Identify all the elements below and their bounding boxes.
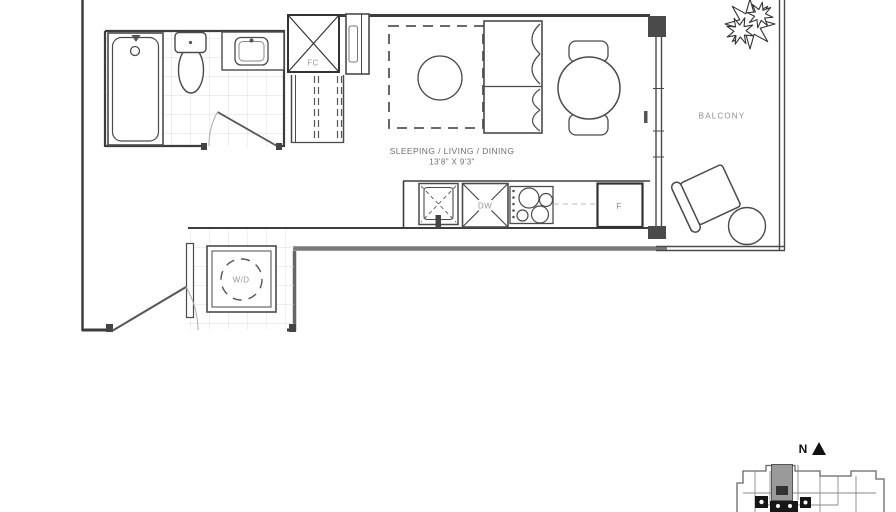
- north-label: N: [799, 442, 808, 456]
- door-jamb: [276, 143, 282, 150]
- washer-dryer-label: W/D: [233, 276, 250, 285]
- dining-table-icon: [558, 57, 620, 119]
- cooktop-icon: [510, 187, 553, 224]
- kitchen-sink-icon: [419, 184, 458, 229]
- bathroom-sink-icon: [222, 32, 284, 70]
- sofa-bed-icon: [484, 21, 542, 133]
- round-rug-icon: [418, 56, 462, 100]
- dining-set-icon: [558, 41, 620, 135]
- bathroom: [105, 31, 284, 150]
- slider-handle: [644, 111, 648, 123]
- bed-area-dashed-outline: [389, 26, 483, 128]
- door-jamb: [201, 143, 207, 150]
- balcony-plant-icon: [725, 0, 775, 49]
- north-arrow-icon: [812, 442, 826, 455]
- balcony-table-icon: [729, 208, 766, 245]
- building-key-plan: [737, 465, 884, 512]
- faucet-icon: [436, 215, 442, 228]
- kitchen: [403, 181, 650, 228]
- floorplan-drawing: [0, 0, 896, 512]
- floorplan-canvas: SLEEPING / LIVING / DINING 13'8" X 9'3" …: [0, 0, 896, 512]
- fridge-label: F: [616, 201, 622, 211]
- dishwasher-label: DW: [478, 202, 492, 211]
- entry-coat-closet: [292, 75, 344, 143]
- closet-sliding-doors: [315, 76, 342, 142]
- tall-cabinet: [346, 14, 369, 74]
- main-room-label: SLEEPING / LIVING / DINING: [390, 146, 515, 156]
- bathtub-icon: [108, 33, 163, 145]
- closet-door-panel: [187, 244, 194, 318]
- sleeping-living-area: [389, 21, 620, 135]
- balcony-window-wall: [644, 16, 666, 239]
- key-plan-unit-highlight: [772, 465, 793, 501]
- door-jamb: [289, 324, 296, 332]
- main-room-dimensions: 13'8" X 9'3": [429, 158, 475, 167]
- balcony: [656, 0, 785, 251]
- fan-coil-label: FC: [307, 59, 318, 68]
- balcony-label: BALCONY: [699, 112, 746, 121]
